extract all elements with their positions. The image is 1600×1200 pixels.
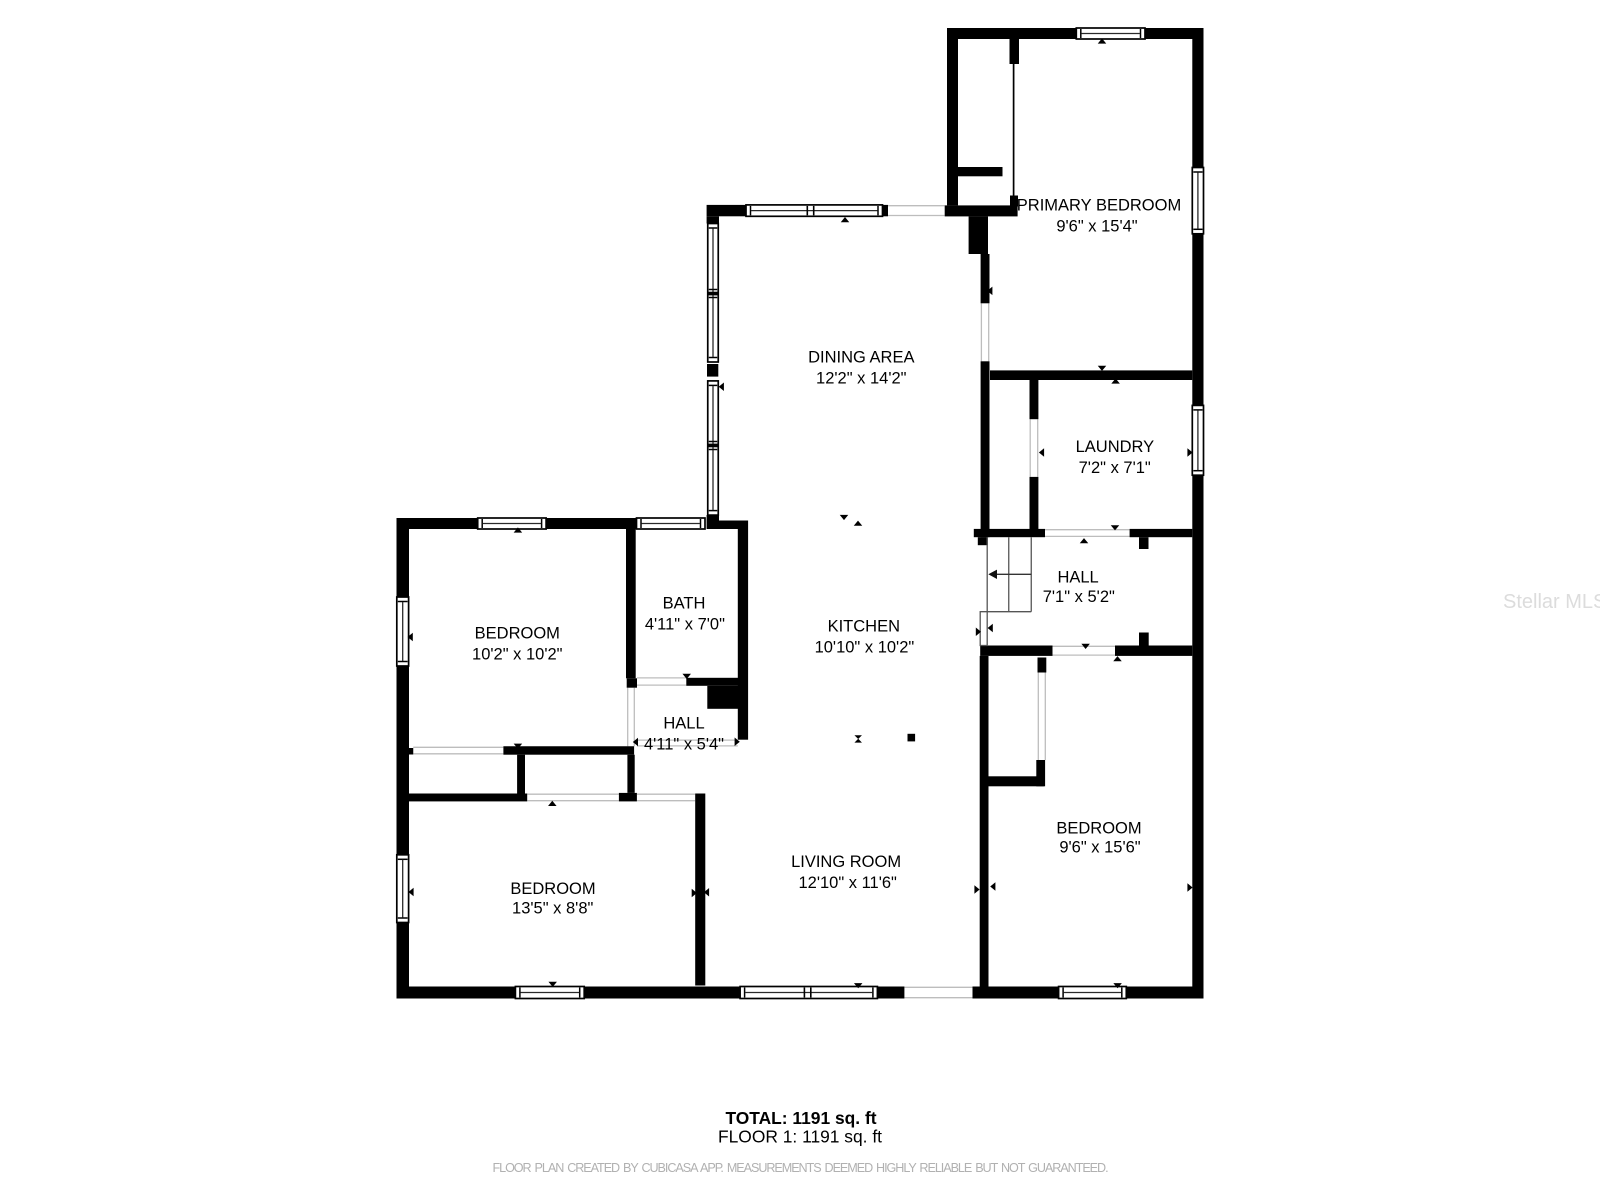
svg-text:LAUNDRY: LAUNDRY bbox=[1076, 438, 1155, 456]
svg-text:FLOOR 1: 1191 sq. ft: FLOOR 1: 1191 sq. ft bbox=[718, 1126, 882, 1146]
svg-text:9'6" x 15'4": 9'6" x 15'4" bbox=[1056, 218, 1137, 236]
svg-text:4'11" x 5'4": 4'11" x 5'4" bbox=[644, 735, 724, 753]
svg-text:10'2" x 10'2": 10'2" x 10'2" bbox=[472, 646, 563, 664]
svg-text:TOTAL: 1191 sq. ft: TOTAL: 1191 sq. ft bbox=[725, 1108, 876, 1128]
svg-text:12'10" x 11'6": 12'10" x 11'6" bbox=[798, 874, 897, 892]
svg-text:4'11" x 7'0": 4'11" x 7'0" bbox=[645, 616, 725, 634]
svg-text:FLOOR PLAN CREATED BY CUBICASA: FLOOR PLAN CREATED BY CUBICASA APP. MEAS… bbox=[492, 1161, 1108, 1175]
svg-text:7'2" x 7'1": 7'2" x 7'1" bbox=[1079, 459, 1151, 477]
svg-text:9'6" x 15'6": 9'6" x 15'6" bbox=[1059, 839, 1140, 857]
svg-text:BEDROOM: BEDROOM bbox=[475, 625, 560, 643]
svg-text:7'1" x 5'2": 7'1" x 5'2" bbox=[1043, 588, 1115, 606]
svg-text:HALL: HALL bbox=[1057, 569, 1098, 587]
svg-text:LIVING ROOM: LIVING ROOM bbox=[791, 853, 901, 871]
svg-text:KITCHEN: KITCHEN bbox=[828, 618, 900, 636]
svg-text:PRIMARY BEDROOM: PRIMARY BEDROOM bbox=[1017, 197, 1181, 215]
svg-text:BEDROOM: BEDROOM bbox=[510, 880, 595, 898]
svg-text:BATH: BATH bbox=[663, 595, 706, 613]
svg-text:Stellar MLS: Stellar MLS bbox=[1503, 591, 1600, 613]
svg-text:13'5" x 8'8": 13'5" x 8'8" bbox=[512, 900, 593, 918]
svg-text:10'10" x 10'2": 10'10" x 10'2" bbox=[815, 639, 915, 657]
svg-text:12'2" x 14'2": 12'2" x 14'2" bbox=[816, 370, 907, 388]
svg-text:HALL: HALL bbox=[663, 714, 704, 732]
svg-text:BEDROOM: BEDROOM bbox=[1056, 820, 1141, 838]
svg-text:DINING AREA: DINING AREA bbox=[808, 349, 914, 367]
